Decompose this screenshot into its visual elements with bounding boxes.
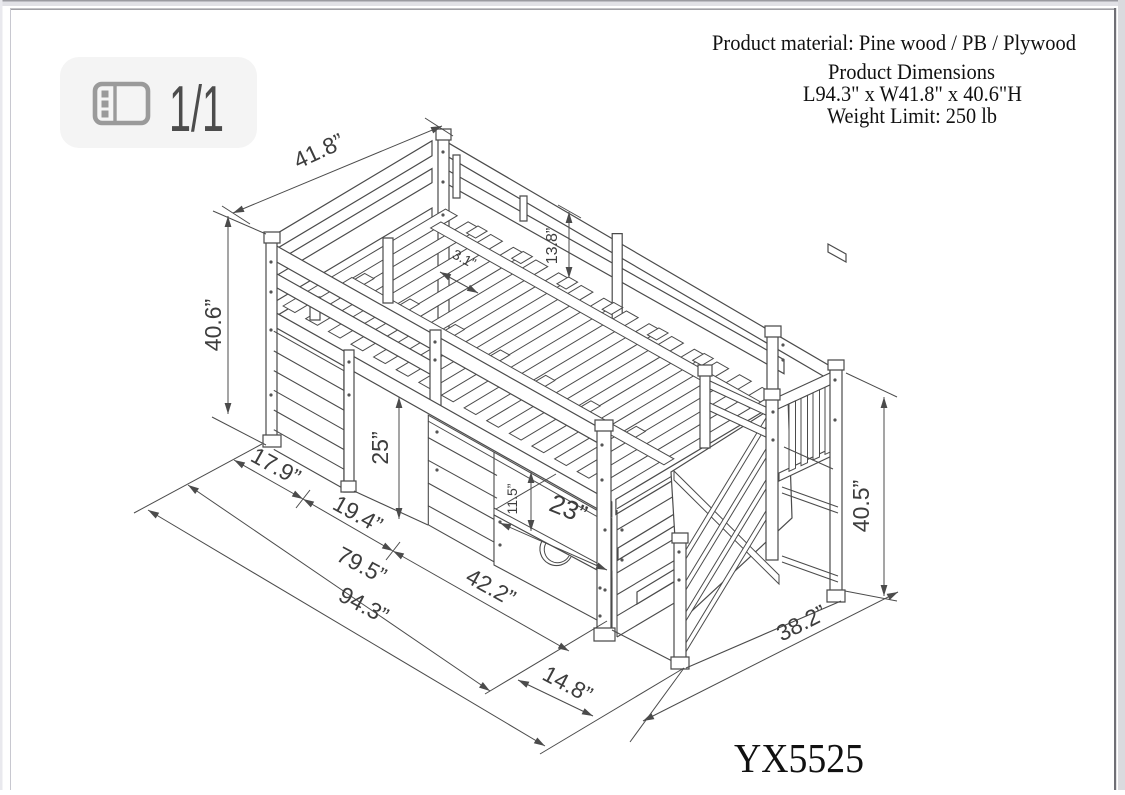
svg-text:Product material: Pine wood /: Product material: Pine wood / PB / Plywo…	[712, 30, 1076, 55]
svg-text:40.6”: 40.6”	[200, 299, 226, 351]
svg-text:25”: 25”	[367, 431, 393, 464]
svg-text:YX5525: YX5525	[734, 735, 864, 781]
svg-text:1/1: 1/1	[169, 72, 224, 145]
svg-text:11.5”: 11.5”	[504, 483, 520, 514]
svg-text:Weight Limit: 250 lb: Weight Limit: 250 lb	[827, 103, 997, 128]
svg-text:40.5”: 40.5”	[848, 480, 874, 532]
svg-text:13.8”: 13.8”	[544, 228, 561, 264]
